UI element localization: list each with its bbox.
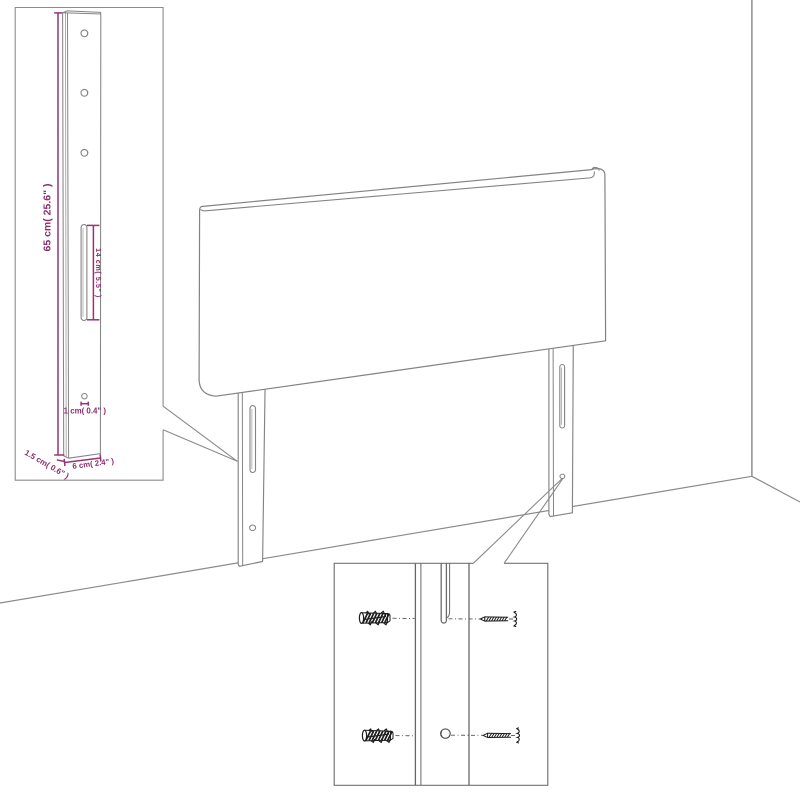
svg-text:6 cm( 2.4" ): 6 cm( 2.4" ) bbox=[72, 456, 115, 470]
svg-text:1 cm( 0.4" ): 1 cm( 0.4" ) bbox=[64, 406, 107, 415]
svg-text:65 cm( 25.6" ): 65 cm( 25.6" ) bbox=[42, 183, 54, 251]
svg-text:14 cm( 5.5" ): 14 cm( 5.5" ) bbox=[94, 248, 103, 298]
